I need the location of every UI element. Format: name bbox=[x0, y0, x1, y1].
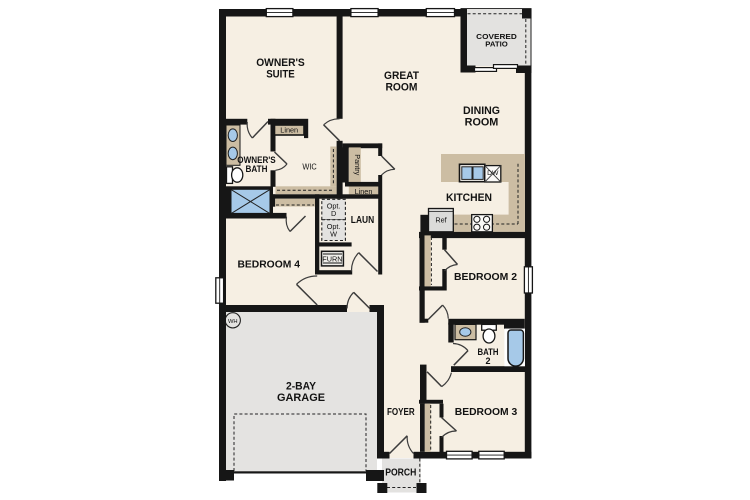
svg-text:GARAGE: GARAGE bbox=[277, 392, 325, 404]
svg-text:WH: WH bbox=[228, 319, 238, 325]
svg-text:SUITE: SUITE bbox=[266, 69, 295, 81]
svg-text:PORCH: PORCH bbox=[385, 468, 416, 479]
svg-text:BEDROOM 4: BEDROOM 4 bbox=[237, 260, 300, 271]
svg-text:Linen: Linen bbox=[280, 126, 298, 135]
svg-text:GREAT: GREAT bbox=[384, 70, 420, 82]
svg-text:FURN: FURN bbox=[322, 254, 342, 263]
svg-text:BATH: BATH bbox=[246, 164, 268, 174]
svg-text:FOYER: FOYER bbox=[387, 407, 415, 418]
svg-text:BEDROOM 2: BEDROOM 2 bbox=[454, 272, 517, 283]
svg-text:ROOM: ROOM bbox=[386, 81, 418, 93]
svg-text:DW: DW bbox=[487, 170, 499, 177]
svg-text:DINING: DINING bbox=[463, 105, 500, 117]
svg-text:KITCHEN: KITCHEN bbox=[446, 192, 492, 204]
svg-text:2: 2 bbox=[485, 356, 490, 366]
svg-text:LAUN: LAUN bbox=[351, 215, 374, 226]
svg-text:WIC: WIC bbox=[302, 162, 317, 171]
svg-text:BEDROOM 3: BEDROOM 3 bbox=[455, 407, 518, 418]
svg-text:2-BAY: 2-BAY bbox=[286, 381, 316, 393]
svg-text:Pantry: Pantry bbox=[353, 154, 362, 175]
svg-text:PATIO: PATIO bbox=[485, 39, 508, 48]
svg-text:Ref: Ref bbox=[435, 215, 447, 224]
svg-text:ROOM: ROOM bbox=[465, 116, 499, 128]
svg-text:W: W bbox=[330, 230, 337, 239]
svg-text:OWNER'S: OWNER'S bbox=[256, 57, 305, 69]
svg-text:D: D bbox=[331, 209, 336, 218]
